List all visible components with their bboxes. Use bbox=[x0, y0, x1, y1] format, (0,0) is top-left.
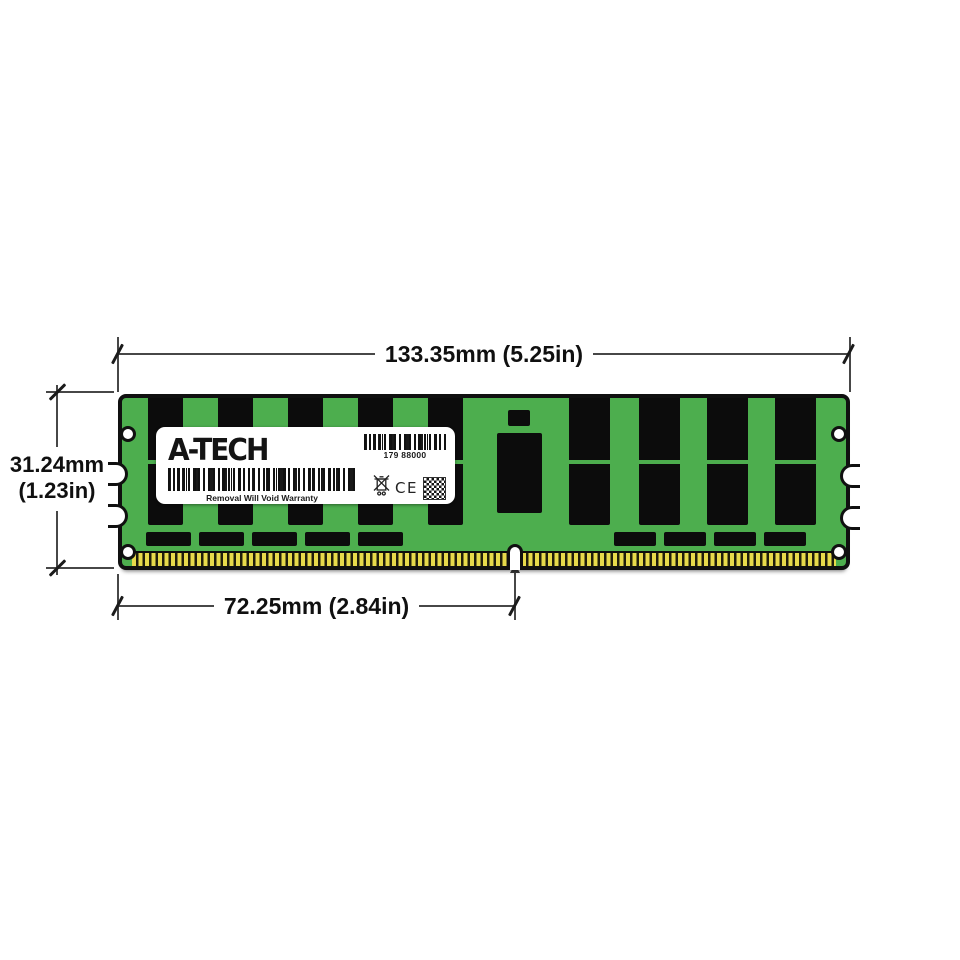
left-dimension-label: 31.24mm (1.23in) bbox=[0, 452, 114, 504]
memory-chip bbox=[614, 532, 656, 546]
product-dimension-diagram: 133.35mm (5.25in) 31.24mm (1.23in) 72.25… bbox=[0, 0, 960, 960]
ce-mark: CE bbox=[395, 479, 418, 497]
barcode-icon bbox=[168, 468, 356, 491]
product-label: A-TECH 179 88000 Removal Will Void Warra… bbox=[156, 427, 455, 504]
mounting-hole bbox=[120, 426, 136, 442]
key-notch bbox=[507, 544, 523, 570]
dimension-line bbox=[118, 353, 375, 355]
memory-chip bbox=[358, 532, 403, 546]
register-chip bbox=[508, 410, 530, 426]
dimension-line bbox=[593, 353, 850, 355]
memory-chip bbox=[775, 398, 816, 525]
memory-chip bbox=[199, 532, 244, 546]
edge-notch bbox=[840, 506, 860, 530]
brand-logo: A-TECH bbox=[168, 434, 267, 465]
compliance-marks: CE bbox=[373, 474, 446, 502]
weee-crossed-bin-icon bbox=[373, 474, 390, 502]
top-dimension-label: 133.35mm (5.25in) bbox=[375, 341, 593, 367]
memory-chip bbox=[707, 398, 748, 525]
main-barcode: Removal Will Void Warranty bbox=[168, 468, 356, 503]
memory-chip bbox=[569, 398, 610, 525]
dimension-line bbox=[118, 605, 214, 607]
memory-chip bbox=[639, 398, 680, 525]
qr-code-icon bbox=[423, 477, 446, 500]
memory-module: A-TECH 179 88000 Removal Will Void Warra… bbox=[118, 394, 850, 570]
memory-chip bbox=[305, 532, 350, 546]
memory-chip bbox=[664, 532, 706, 546]
edge-notch bbox=[840, 464, 860, 488]
memory-chip bbox=[714, 532, 756, 546]
edge-notch bbox=[108, 504, 128, 528]
edge-notch bbox=[108, 462, 128, 486]
memory-chip bbox=[252, 532, 297, 546]
serial-number: 179 88000 bbox=[364, 450, 446, 460]
dimension-line bbox=[419, 605, 515, 607]
mounting-hole bbox=[120, 544, 136, 560]
barcode-icon bbox=[364, 434, 446, 450]
pin-row bbox=[132, 551, 836, 566]
warranty-warning-text: Removal Will Void Warranty bbox=[168, 493, 356, 503]
serial-barcode: 179 88000 bbox=[364, 434, 446, 460]
bottom-dimension-label: 72.25mm (2.84in) bbox=[214, 593, 419, 619]
left-dimension-mm: 31.24mm bbox=[0, 452, 114, 478]
left-dimension-in: (1.23in) bbox=[0, 478, 114, 504]
mounting-hole bbox=[831, 544, 847, 560]
memory-chip bbox=[764, 532, 806, 546]
memory-chip bbox=[146, 532, 191, 546]
buffer-chip bbox=[497, 433, 542, 513]
mounting-hole bbox=[831, 426, 847, 442]
